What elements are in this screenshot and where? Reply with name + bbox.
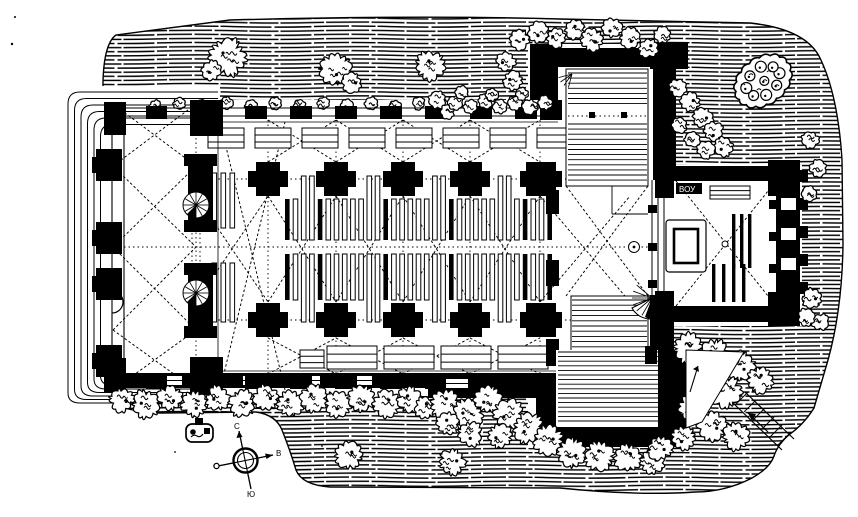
svg-text:С: С — [234, 422, 240, 431]
svg-text:Ю: Ю — [247, 490, 255, 499]
svg-text:В: В — [276, 449, 281, 458]
svg-text:ВОУ: ВОУ — [679, 185, 696, 194]
